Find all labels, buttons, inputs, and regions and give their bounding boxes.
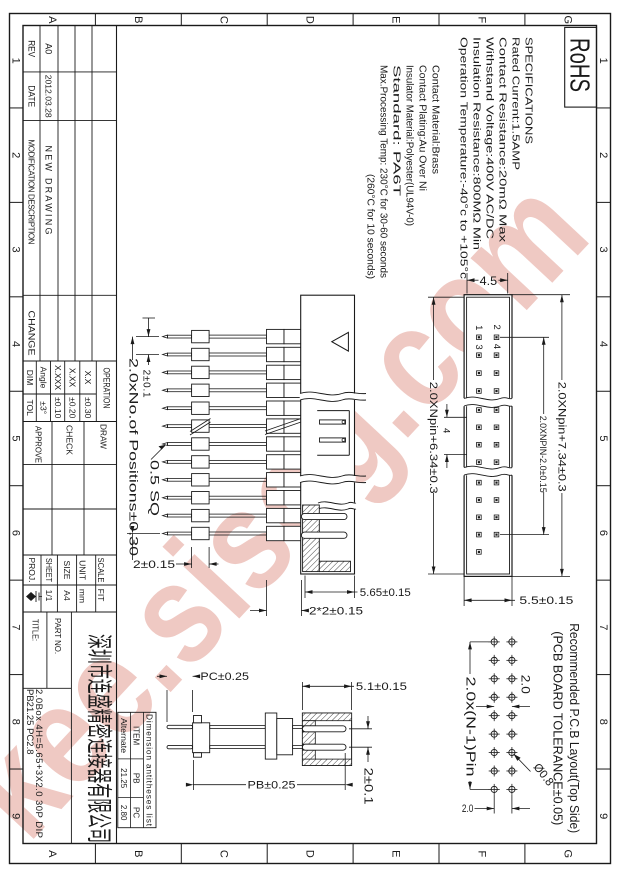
svg-text:Dimension antitheses list: Dimension antitheses list (145, 714, 155, 827)
svg-text:±0.20: ±0.20 (67, 397, 77, 418)
svg-text:(PCB BOARD TOLERANCE±0.05): (PCB BOARD TOLERANCE±0.05) (551, 631, 566, 825)
svg-text:A0: A0 (44, 43, 54, 54)
svg-text:Contact Resistance:20mΩ Max: Contact Resistance:20mΩ Max (497, 37, 508, 243)
svg-text:X.X: X.X (83, 371, 93, 385)
svg-text:G: G (561, 850, 573, 859)
svg-text:PB±0.25: PB±0.25 (248, 780, 296, 792)
svg-text:X.XX: X.XX (67, 368, 77, 388)
svg-text:REV: REV (27, 40, 37, 57)
svg-text:2.0: 2.0 (462, 803, 474, 815)
svg-text:Alternate: Alternate (119, 718, 128, 754)
svg-text:2±0.1: 2±0.1 (361, 768, 373, 805)
svg-text:SHEET: SHEET (44, 558, 54, 582)
svg-text:Standard: PA6T: Standard: PA6T (391, 65, 402, 197)
svg-text:2.0x(N-1)Pin: 2.0x(N-1)Pin (464, 677, 479, 777)
svg-text:PC: PC (132, 807, 141, 818)
svg-text:5.65±0.15: 5.65±0.15 (360, 587, 411, 599)
svg-text:B: B (132, 16, 144, 23)
svg-text:OPERATION: OPERATION (101, 368, 111, 409)
svg-text:3: 3 (10, 247, 22, 253)
svg-text:ITEM: ITEM (132, 726, 141, 745)
svg-text:E: E (389, 850, 401, 857)
svg-text:2.0XNPIN-2.0±0.15: 2.0XNPIN-2.0±0.15 (537, 416, 548, 493)
svg-text:TITLE:: TITLE: (30, 619, 40, 641)
svg-text:Contact Material:Brass: Contact Material:Brass (430, 65, 441, 174)
svg-text:4.5: 4.5 (480, 276, 498, 288)
svg-text:2012.03.28: 2012.03.28 (44, 75, 54, 118)
svg-text:Rated Current:1.5AMP: Rated Current:1.5AMP (510, 37, 521, 170)
svg-text:APPROVE: APPROVE (33, 426, 43, 463)
svg-text:A4: A4 (62, 590, 72, 601)
svg-text:5: 5 (597, 435, 609, 441)
svg-text:±0.10: ±0.10 (53, 397, 63, 418)
svg-text:CHANGE: CHANGE (27, 311, 37, 356)
svg-text:F: F (475, 850, 487, 857)
svg-text:4: 4 (597, 341, 609, 347)
svg-text:Max.Processing Temp: 230°C: Max.Processing Temp: 230°C for 30-60 sec… (378, 65, 389, 278)
svg-text:SPECIFICATIONS: SPECIFICATIONS (523, 37, 534, 144)
svg-text:PART NO.: PART NO. (53, 618, 63, 654)
svg-text:PROJ.: PROJ. (27, 557, 37, 582)
svg-text:7: 7 (10, 624, 22, 630)
svg-text:6: 6 (597, 530, 609, 536)
svg-text:(260°C for 10 seconds): (260°C for 10 seconds) (365, 174, 376, 279)
svg-text:PC±0.25: PC±0.25 (200, 671, 249, 683)
svg-text:C: C (218, 16, 230, 24)
svg-text:G: G (561, 16, 573, 25)
svg-text:DATE: DATE (27, 85, 37, 107)
svg-text:2.0xNo.of Positions±0.30: 2.0xNo.of Positions±0.30 (126, 358, 140, 556)
svg-text:Operation Temperature:-40°c: Operation Temperature:-40°c to +105°c (458, 37, 469, 279)
svg-text:4: 4 (10, 341, 22, 347)
svg-text:3: 3 (473, 344, 484, 349)
svg-text:5.5±0.15: 5.5±0.15 (519, 595, 573, 607)
svg-text:6: 6 (10, 530, 22, 536)
svg-text:2.0XNpin+6.34±0.3: 2.0XNpin+6.34±0.3 (427, 382, 439, 494)
svg-text:PB: PB (132, 773, 141, 784)
svg-text:FIT: FIT (96, 589, 106, 602)
svg-text:Recommended P.C.B Layout(Top: Recommended P.C.B Layout(Top Side) (567, 623, 582, 833)
svg-text:5.1±0.15: 5.1±0.15 (356, 681, 407, 693)
svg-text:8: 8 (10, 719, 22, 725)
svg-text:Withstand Voltage:400V AC/DC: Withstand Voltage:400V AC/DC (484, 37, 495, 240)
svg-text:DIM: DIM (25, 370, 35, 386)
svg-text:MODIFICATION DESCRIPTION: MODIFICATION DESCRIPTION (27, 140, 36, 245)
svg-text:0.5 SQ: 0.5 SQ (148, 460, 162, 516)
svg-text:1/1: 1/1 (44, 590, 54, 602)
svg-text:Insulation Resistance:800MΩ: Insulation Resistance:800MΩ Min (471, 37, 482, 250)
svg-text:2±0.1: 2±0.1 (141, 370, 152, 398)
svg-text:UNIT: UNIT (78, 560, 88, 580)
svg-text:Insulator Material:Polyester(: Insulator Material:Polyester(UL94V-0) (404, 65, 415, 226)
svg-text:9: 9 (10, 813, 22, 819)
svg-text:2: 2 (491, 324, 502, 329)
svg-text:RoHS: RoHS (565, 38, 596, 92)
svg-text:3: 3 (597, 247, 609, 253)
svg-text:A: A (46, 850, 58, 858)
svg-text:1: 1 (10, 58, 22, 64)
svg-text:mm: mm (78, 589, 88, 603)
svg-text:1: 1 (473, 325, 484, 330)
svg-text:C: C (218, 850, 230, 858)
svg-text:2: 2 (597, 152, 609, 158)
svg-text:2: 2 (10, 152, 22, 158)
svg-text:F: F (475, 16, 487, 23)
svg-text:7: 7 (597, 624, 609, 630)
svg-text:2.0XNpin+7.34±0.3: 2.0XNpin+7.34±0.3 (555, 382, 567, 492)
svg-text:E: E (389, 16, 401, 23)
svg-text:SCALE: SCALE (96, 558, 106, 583)
svg-text:9: 9 (597, 813, 609, 819)
svg-text:±0.30: ±0.30 (83, 397, 93, 418)
svg-text:NEW DRAWING: NEW DRAWING (44, 146, 54, 235)
svg-text:A: A (46, 16, 58, 24)
svg-text:2.80: 2.80 (119, 805, 128, 821)
svg-text:5: 5 (10, 435, 22, 441)
svg-text:2.0: 2.0 (518, 675, 530, 694)
svg-text:DRAW: DRAW (99, 424, 109, 449)
svg-text:Angle: Angle (39, 367, 49, 389)
svg-text:PB21.25 PC2.8: PB21.25 PC2.8 (24, 689, 35, 755)
svg-text:2*2±0.15: 2*2±0.15 (309, 605, 363, 617)
svg-text:±3°: ±3° (39, 401, 49, 414)
svg-text:Contact Plating:Au Over Ni: Contact Plating:Au Over Ni (417, 65, 428, 191)
svg-text:B: B (132, 850, 144, 857)
svg-text:8: 8 (597, 719, 609, 725)
svg-text:D: D (304, 850, 316, 858)
svg-text:4: 4 (491, 344, 502, 349)
svg-text:4: 4 (440, 428, 451, 433)
svg-text:2±0.15: 2±0.15 (133, 559, 175, 571)
svg-text:D: D (304, 16, 316, 24)
svg-text:21.25: 21.25 (119, 768, 128, 789)
svg-text:CHECK: CHECK (65, 425, 75, 455)
svg-text:深圳市连盛精密连接器有限公司: 深圳市连盛精密连接器有限公司 (84, 634, 114, 843)
svg-text:X.XXX: X.XXX (53, 365, 63, 390)
svg-text:SIZE: SIZE (62, 561, 72, 580)
svg-text:1: 1 (597, 58, 609, 64)
svg-text:TOL: TOL (25, 400, 35, 417)
